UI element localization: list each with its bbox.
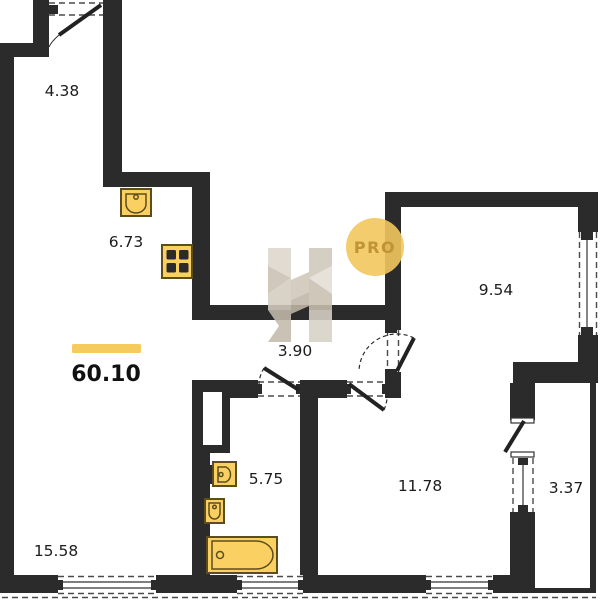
pro-badge-label: PRO	[354, 238, 396, 257]
wall	[300, 383, 318, 575]
wall	[513, 362, 598, 383]
door-leaf	[59, 5, 101, 35]
watermark-logo	[268, 248, 332, 342]
accent-bar	[72, 344, 141, 353]
toilet-icon	[205, 499, 224, 523]
wall	[103, 0, 122, 187]
bedroom-door	[344, 382, 389, 410]
balcony-outer-wall	[590, 383, 596, 593]
door-arc	[49, 35, 59, 47]
wall	[33, 0, 49, 46]
room-area-label: 9.54	[479, 281, 514, 299]
kitchen-sink-icon	[121, 189, 151, 216]
pro-badge: PRO	[346, 218, 404, 276]
room-area-label: 5.75	[249, 470, 284, 488]
duct-shaft-inner	[203, 392, 222, 445]
window	[237, 577, 303, 594]
wall	[578, 335, 598, 362]
door-leaf	[264, 368, 299, 390]
door-leaf	[505, 421, 524, 452]
wall	[493, 575, 513, 593]
balcony-outer-wall	[535, 588, 596, 593]
wall	[385, 192, 578, 207]
wall	[0, 43, 14, 593]
wall	[510, 512, 535, 593]
total-area-label: 60.10	[71, 362, 141, 387]
bathroom-door	[255, 368, 303, 396]
bathroom-sink-icon	[203, 462, 236, 486]
window	[580, 232, 597, 335]
room-area-label: 4.38	[45, 82, 80, 100]
wall	[303, 575, 426, 593]
total-area-block: 60.10	[71, 344, 141, 387]
room-area-label: 3.37	[549, 479, 584, 497]
floor-plan: PRO 4.38 6.73 3.90 9.54 5.75 11.78 3.37 …	[0, 0, 602, 600]
room-area-label: 6.73	[109, 233, 144, 251]
wall	[387, 380, 401, 398]
wall	[103, 172, 210, 187]
door-leaf	[397, 338, 414, 371]
wall	[578, 192, 598, 232]
window	[58, 577, 156, 594]
room-area-label: 3.90	[278, 342, 313, 360]
wall	[0, 575, 58, 593]
wall	[192, 187, 210, 320]
bathtub-icon	[207, 537, 277, 573]
room-area-label: 15.58	[34, 542, 78, 560]
stove-icon	[162, 245, 192, 278]
room-area-label: 11.78	[398, 477, 442, 495]
door-leaf	[349, 384, 384, 410]
balcony-door	[505, 418, 534, 512]
wall	[510, 383, 535, 420]
entry-door	[49, 3, 103, 47]
wall	[156, 575, 237, 593]
window	[426, 577, 493, 594]
floor-plan-canvas: PRO 4.38 6.73 3.90 9.54 5.75 11.78 3.37 …	[0, 0, 602, 600]
room-954-door	[359, 325, 414, 377]
